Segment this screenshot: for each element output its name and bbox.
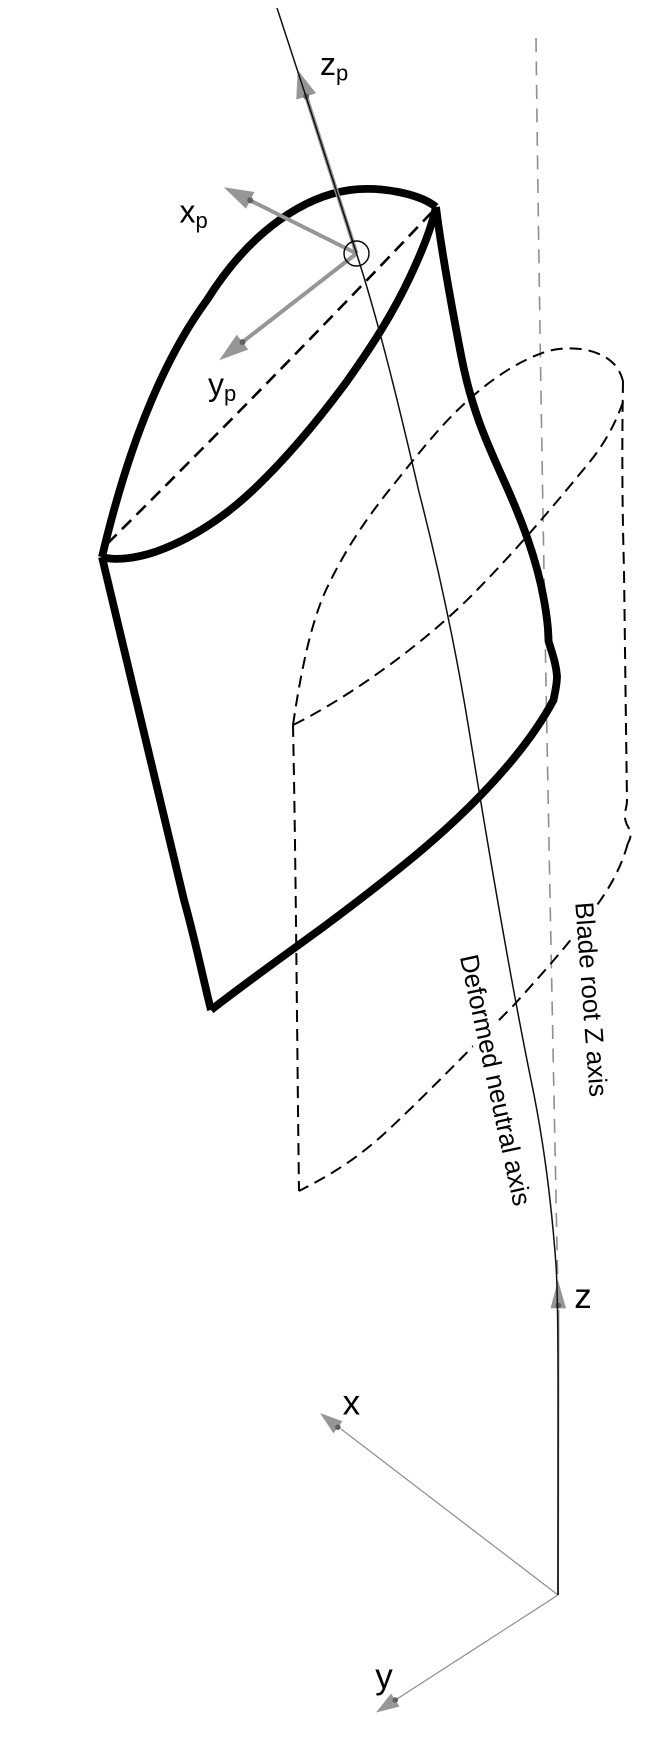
svg-text:z: z [574,1277,592,1316]
svg-text:x: x [343,1384,361,1423]
svg-text:y: y [375,1657,393,1696]
